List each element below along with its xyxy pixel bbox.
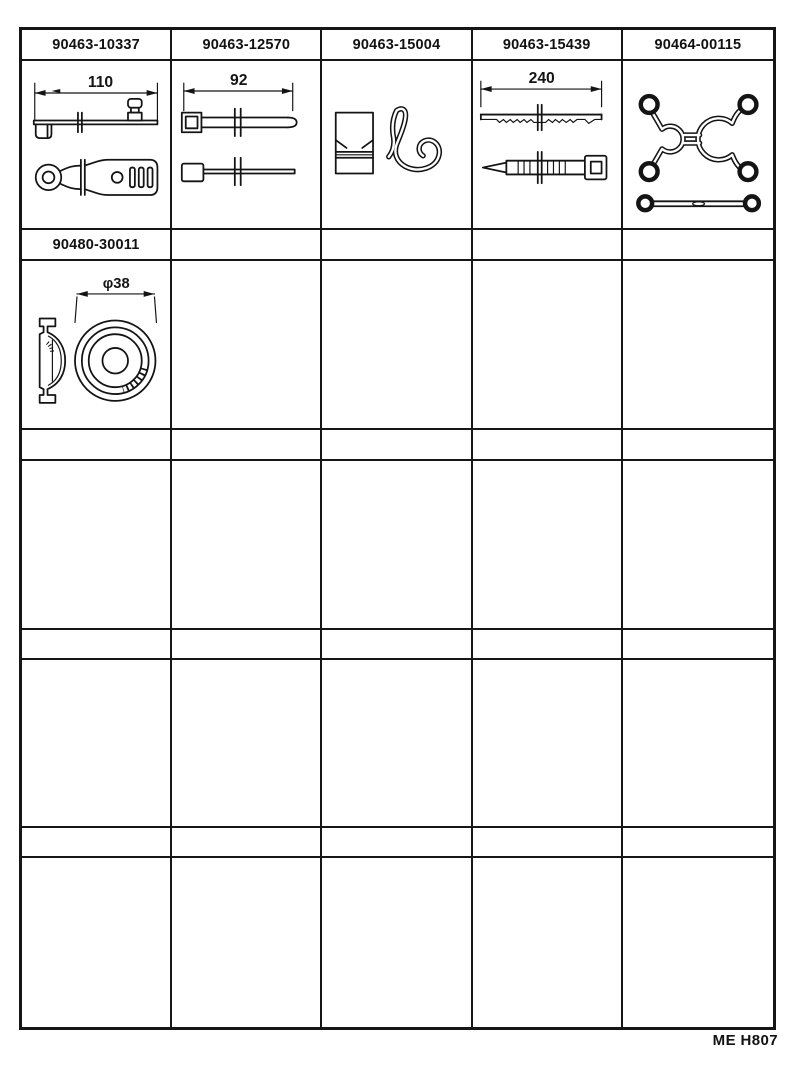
empty-drawing-cell (473, 461, 623, 630)
parts-table: 90463-10337 90463-12570 90463-15004 9046… (19, 27, 776, 1030)
drawing-cell-double-clamp (623, 61, 773, 230)
clip-front-view (336, 113, 373, 174)
dim-arrow-left-icon (184, 88, 195, 94)
empty-drawing-cell (623, 660, 773, 828)
empty-drawing-cell (623, 461, 773, 630)
page-code: ME H807 (713, 1032, 778, 1049)
clip-hook-view (389, 109, 440, 170)
parts-catalog-page: 90463-10337 90463-12570 90463-15004 9046… (0, 0, 800, 1072)
clamp-side-view (34, 99, 158, 138)
empty-drawing-cell (172, 461, 322, 630)
cable-tie-92-drawing: 92 (172, 61, 320, 228)
drawing-cell-tie-240: 240 (473, 61, 623, 230)
empty-header-cell (322, 630, 472, 660)
part-number: 90463-10337 (52, 37, 140, 53)
dimension-label: 240 (528, 70, 554, 87)
dim-arrow-right-icon (590, 86, 601, 92)
empty-header-cell (623, 430, 773, 461)
part-number-cell: 90463-12570 (172, 30, 322, 61)
empty-drawing-cell (172, 660, 322, 828)
clamp-top-view (36, 160, 158, 195)
empty-header-cell (473, 630, 623, 660)
empty-drawing-cell (322, 261, 472, 430)
empty-header-cell (172, 230, 322, 261)
double-clamp-drawing (623, 61, 773, 228)
empty-drawing-cell (172, 858, 322, 1027)
tie-top-view (480, 105, 601, 131)
tie-top-view (182, 109, 297, 136)
part-number: 90464-00115 (654, 37, 741, 53)
empty-header-cell (22, 828, 172, 858)
empty-header-cell (22, 430, 172, 461)
empty-header-cell (623, 828, 773, 858)
dim-arrow-right-icon (144, 291, 155, 297)
part-number: 90463-15004 (353, 37, 441, 53)
clamp-side-view (638, 196, 759, 210)
empty-header-cell (172, 430, 322, 461)
dim-arrow-left-icon (77, 291, 88, 297)
empty-drawing-cell (322, 660, 472, 828)
drawing-cell-tie-92: 92 (172, 61, 322, 230)
drawing-cell-grommet: φ38 (22, 261, 172, 430)
clamp-top-view (641, 96, 757, 180)
empty-drawing-cell (22, 660, 172, 828)
empty-drawing-cell (322, 461, 472, 630)
drawing-cell-clamp-110: 110 (22, 61, 172, 230)
dim-arrow-right-icon (282, 88, 293, 94)
cable-tie-240-drawing: 240 (473, 61, 621, 228)
empty-drawing-cell (172, 261, 322, 430)
empty-drawing-cell (473, 660, 623, 828)
part-number-cell: 90464-00115 (623, 30, 773, 61)
part-number: 90480-30011 (53, 237, 140, 253)
empty-drawing-cell (623, 858, 773, 1027)
tie-side-view (482, 152, 606, 183)
empty-header-cell (473, 230, 623, 261)
part-number-cell: 90463-10337 (22, 30, 172, 61)
dimension-label: 92 (230, 72, 248, 89)
empty-header-cell (623, 230, 773, 261)
clamp-110-drawing: 110 (22, 61, 170, 228)
part-number: 90463-15439 (503, 37, 591, 53)
empty-header-cell (172, 828, 322, 858)
empty-drawing-cell (623, 261, 773, 430)
dim-arrow-left-icon (480, 86, 491, 92)
dimension-label: 110 (88, 74, 114, 91)
empty-drawing-cell (473, 858, 623, 1027)
empty-drawing-cell (22, 858, 172, 1027)
empty-header-cell (473, 828, 623, 858)
empty-drawing-cell (22, 461, 172, 630)
dimension-label: φ38 (103, 276, 130, 292)
grommet-front-view (75, 320, 155, 400)
part-number: 90463-12570 (202, 37, 290, 53)
tie-side-view (182, 158, 295, 185)
empty-header-cell (473, 430, 623, 461)
grommet-drawing: φ38 (22, 261, 170, 428)
dim-arrow-right-icon (147, 90, 158, 96)
part-number-cell: 90463-15004 (322, 30, 472, 61)
wire-clip-drawing (322, 61, 470, 228)
dim-arrow-left-icon (35, 90, 46, 96)
empty-header-cell (322, 430, 472, 461)
empty-header-cell (22, 630, 172, 660)
empty-header-cell (322, 230, 472, 261)
empty-header-cell (322, 828, 472, 858)
part-number-cell: 90480-30011 (22, 230, 172, 261)
empty-drawing-cell (322, 858, 472, 1027)
empty-header-cell (623, 630, 773, 660)
drawing-cell-wire-clip (322, 61, 472, 230)
empty-header-cell (172, 630, 322, 660)
empty-drawing-cell (473, 261, 623, 430)
part-number-cell: 90463-15439 (473, 30, 623, 61)
grommet-side-view (40, 318, 66, 402)
